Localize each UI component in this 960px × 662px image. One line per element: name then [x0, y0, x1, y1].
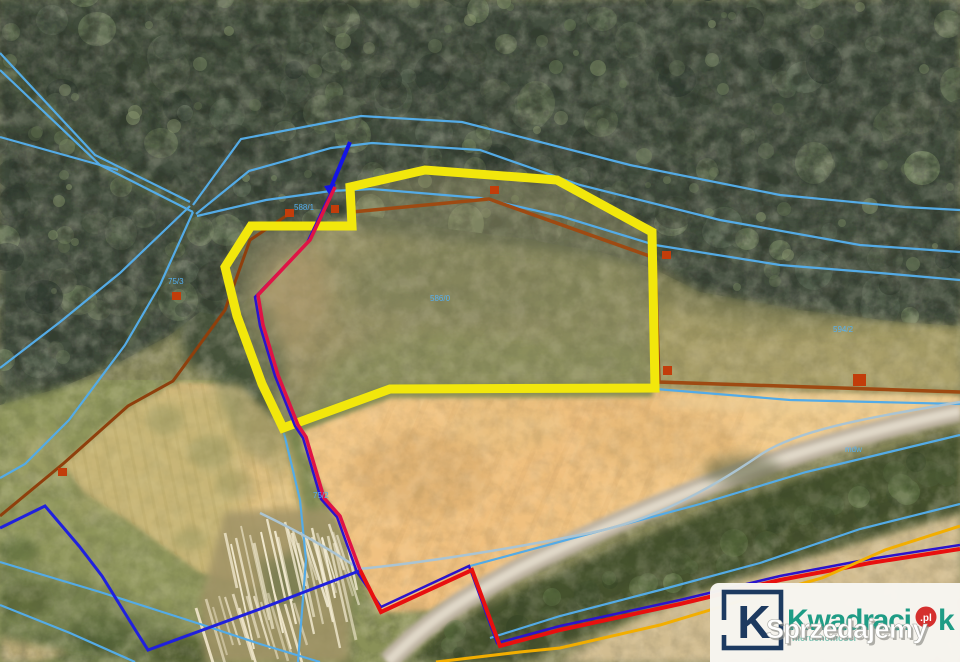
svg-text:75/3: 75/3	[168, 277, 184, 286]
svg-text:594/2: 594/2	[833, 325, 854, 334]
svg-text:k: k	[938, 604, 955, 637]
svg-text:75/2: 75/2	[313, 491, 329, 500]
svg-text:mdw: mdw	[845, 445, 862, 454]
svg-text:Sprzedajemy: Sprzedajemy	[766, 614, 928, 644]
svg-text:588/1: 588/1	[294, 203, 315, 212]
svg-text:586/0: 586/0	[430, 294, 451, 303]
